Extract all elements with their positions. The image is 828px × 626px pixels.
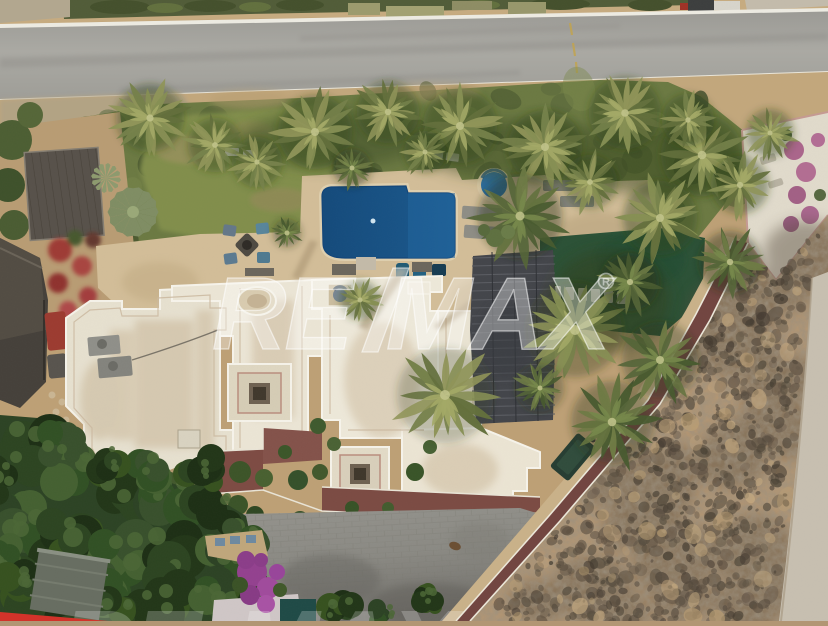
svg-text:MAX: MAX bbox=[234, 589, 464, 621]
svg-text:MAX: MAX bbox=[386, 256, 616, 371]
svg-text:RE: RE bbox=[60, 589, 204, 621]
svg-text:R: R bbox=[602, 277, 610, 289]
svg-text:RE: RE bbox=[212, 256, 356, 371]
